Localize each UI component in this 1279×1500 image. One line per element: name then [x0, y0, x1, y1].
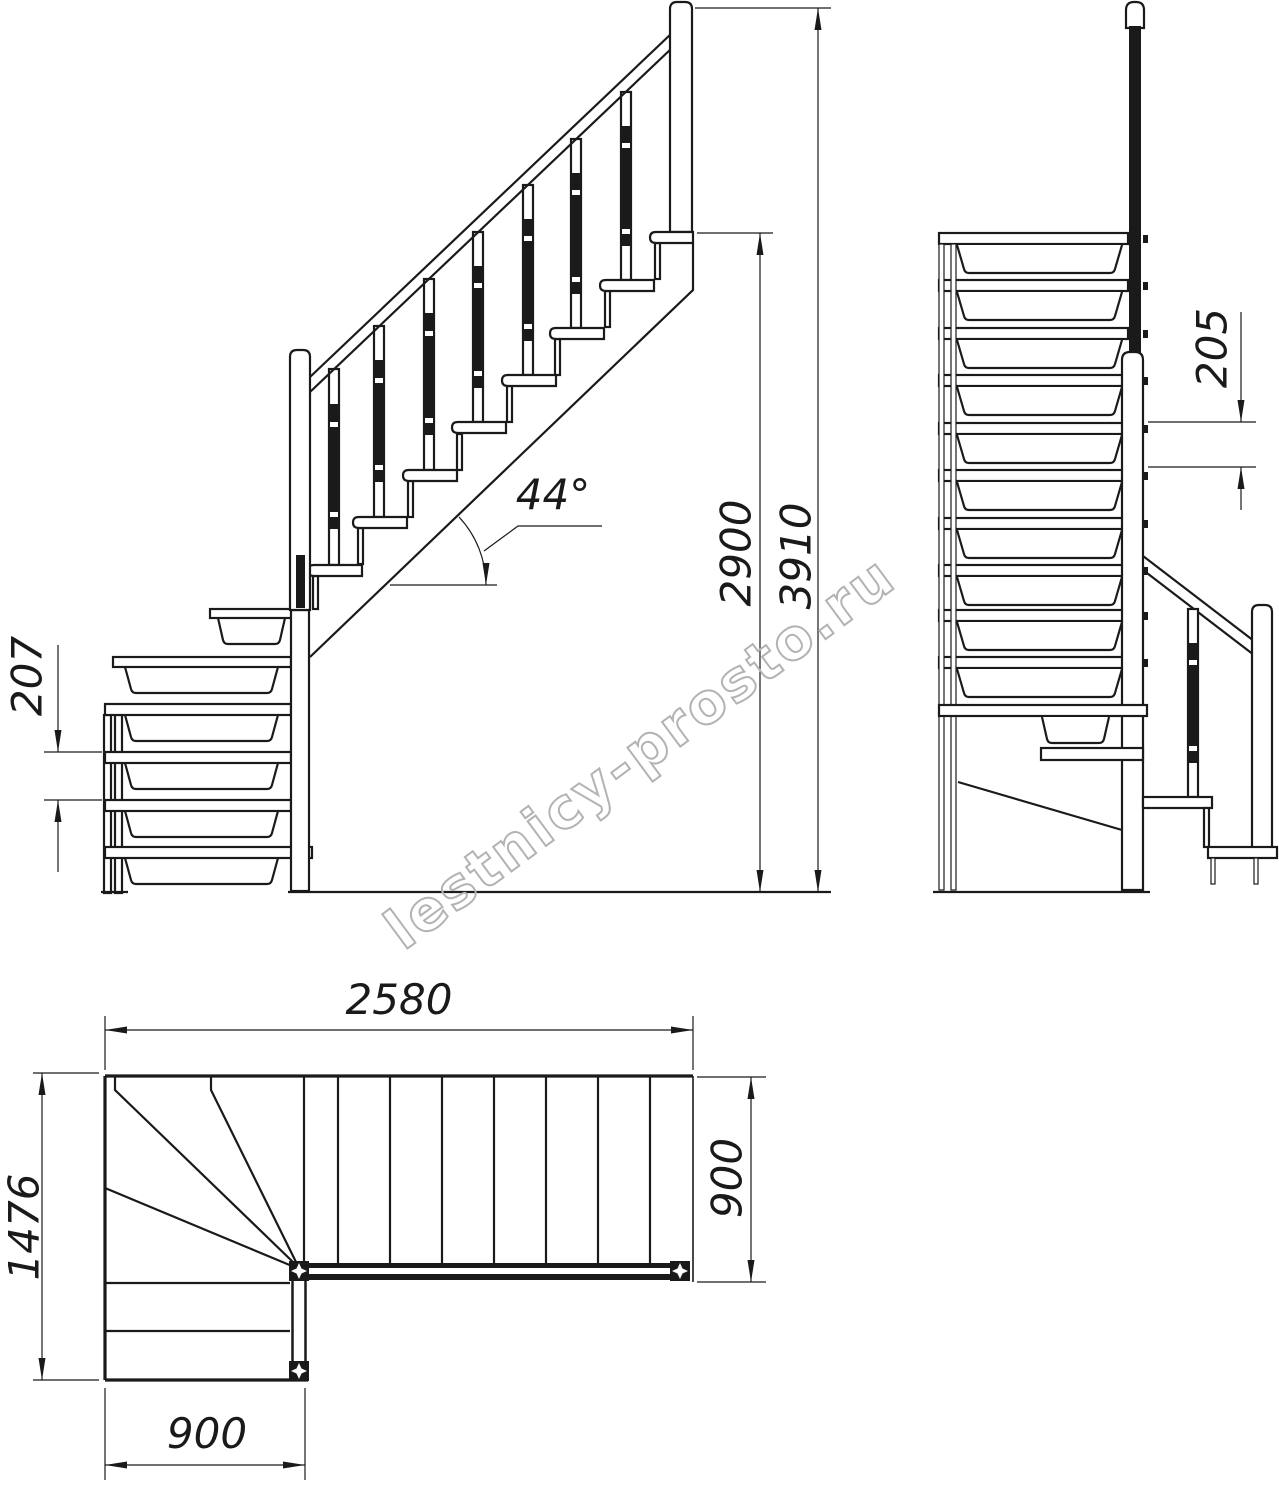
leg: [1211, 858, 1215, 884]
step-riser: [1204, 808, 1209, 847]
winder-tread: [1041, 748, 1143, 760]
winder-tread: [105, 704, 291, 715]
dim-label-205: 205: [1188, 308, 1237, 388]
winder-tread: [105, 752, 291, 763]
baluster: [523, 185, 533, 375]
top-newel-post: [670, 2, 692, 232]
dim-label-900-right: 900: [703, 1138, 752, 1218]
step-tread: [1143, 797, 1212, 808]
blueprint-page: 207 44° 2900 3910: [0, 0, 1279, 1500]
baluster: [424, 279, 434, 470]
winder-tread: [105, 847, 312, 858]
tread-apron: [125, 715, 278, 741]
baluster: [473, 232, 483, 422]
baluster: [621, 92, 631, 280]
baluster: [1188, 609, 1198, 797]
winder-tread: [210, 609, 293, 618]
leg: [951, 244, 956, 890]
winder-tread: [105, 800, 291, 811]
newel-post-symbol: [289, 1261, 309, 1281]
winder-tread: [113, 657, 291, 667]
tread-apron: [125, 811, 278, 837]
leg: [939, 244, 944, 890]
lower-newel-post: [1252, 605, 1272, 850]
step-tread: [1208, 847, 1277, 858]
handrail-cap: [1126, 2, 1144, 28]
baluster: [571, 139, 581, 328]
staircase-drawing: 207 44° 2900 3910: [0, 0, 1279, 1500]
newel-post-symbol: [670, 1261, 690, 1281]
tread-apron: [125, 763, 278, 789]
dim-label-2580: 2580: [346, 975, 453, 1024]
baluster: [329, 369, 339, 565]
dim-label-900-bottom: 900: [167, 1409, 247, 1458]
leg: [1254, 858, 1258, 884]
center-post: [290, 350, 310, 891]
center-post: [1122, 352, 1143, 890]
newel-post-symbol: [289, 1361, 309, 1381]
tread-apron: [218, 618, 285, 644]
dim-label-2900: 2900: [712, 500, 761, 607]
rail-end-edge: [296, 555, 305, 608]
tread-apron: [125, 667, 278, 693]
dim-label-1476: 1476: [0, 1174, 49, 1281]
landing-tread: [650, 232, 693, 243]
dim-label-207: 207: [3, 636, 52, 716]
tread-apron: [125, 858, 278, 884]
winder-tread: [939, 705, 1147, 716]
dim-label-44deg: 44°: [516, 470, 590, 519]
tread-apron: [1042, 717, 1109, 743]
baluster: [374, 326, 384, 517]
